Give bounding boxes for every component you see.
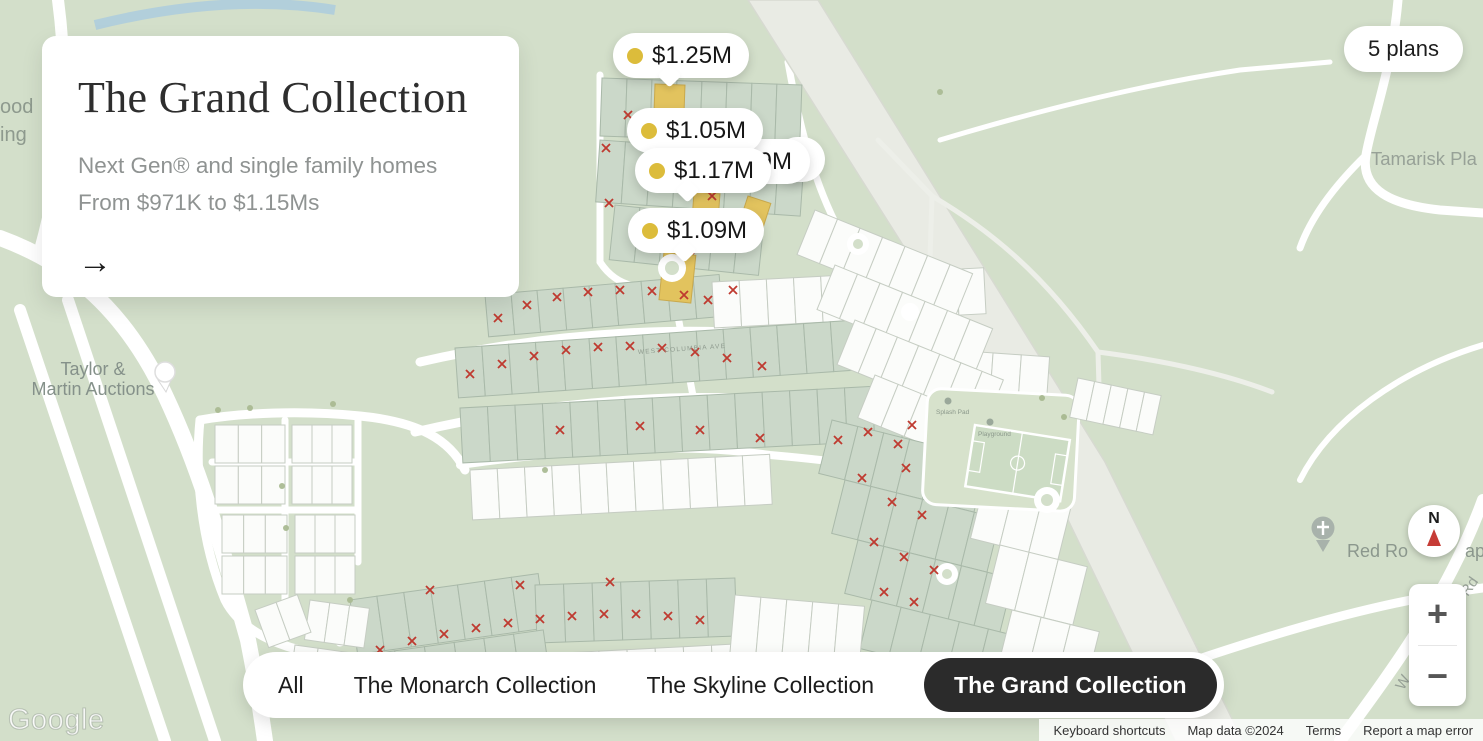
tab-skyline-collection[interactable]: The Skyline Collection [646, 672, 874, 699]
marker-dot-icon [649, 163, 665, 179]
price-marker-1-25m[interactable]: $1.25M [613, 33, 749, 78]
report-map-error-link[interactable]: Report a map error [1363, 723, 1473, 738]
map-data-copyright: Map data ©2024 [1187, 723, 1283, 738]
price-marker-1-17m[interactable]: $1.17M [635, 148, 771, 193]
compass-needle-icon [1427, 529, 1441, 546]
map-attribution-bar: Keyboard shortcuts Map data ©2024 Terms … [1039, 719, 1483, 741]
tab-all[interactable]: All [278, 672, 304, 699]
tab-monarch-collection[interactable]: The Monarch Collection [354, 672, 597, 699]
poi-splash-pad-label: Splash Pad [936, 409, 970, 416]
compass-control[interactable]: N [1408, 505, 1460, 557]
zoom-out-button[interactable]: − [1409, 646, 1466, 707]
terms-link[interactable]: Terms [1306, 723, 1341, 738]
plans-count-label: 5 plans [1368, 36, 1439, 62]
poi-playground-label: Playground [978, 431, 1011, 438]
collection-title: The Grand Collection [78, 72, 483, 123]
marker-price-label: $1.05M [666, 117, 746, 145]
marker-dot-icon [627, 48, 643, 64]
marker-dot-icon [641, 123, 657, 139]
zoom-in-button[interactable]: + [1409, 584, 1466, 645]
price-marker-1-05m[interactable]: $1.05M [627, 108, 763, 153]
marker-dot-icon [642, 223, 658, 239]
google-logo[interactable]: Google [8, 704, 105, 737]
arrow-right-icon[interactable]: → [78, 245, 112, 279]
price-marker-1-09m[interactable]: $1.09M [628, 208, 764, 253]
compass-north-label: N [1408, 511, 1460, 527]
marker-price-label: $1.25M [652, 42, 732, 70]
zoom-control: + − [1409, 584, 1466, 706]
plans-count-button[interactable]: 5 plans [1344, 26, 1463, 72]
collection-filter-bar: All The Monarch Collection The Skyline C… [243, 652, 1224, 718]
keyboard-shortcuts-link[interactable]: Keyboard shortcuts [1053, 723, 1165, 738]
collection-description: Next Gen® and single family homes [78, 147, 483, 184]
collection-info-card: The Grand Collection Next Gen® and singl… [42, 36, 519, 297]
map-viewport: .lotg{fill:#cbd8c9;stroke:#a9b9a9;stroke… [0, 0, 1483, 741]
tab-grand-collection[interactable]: The Grand Collection [924, 658, 1217, 712]
marker-price-label: $1.09M [667, 217, 747, 245]
collection-price-range: From $971K to $1.15Ms [78, 184, 483, 221]
